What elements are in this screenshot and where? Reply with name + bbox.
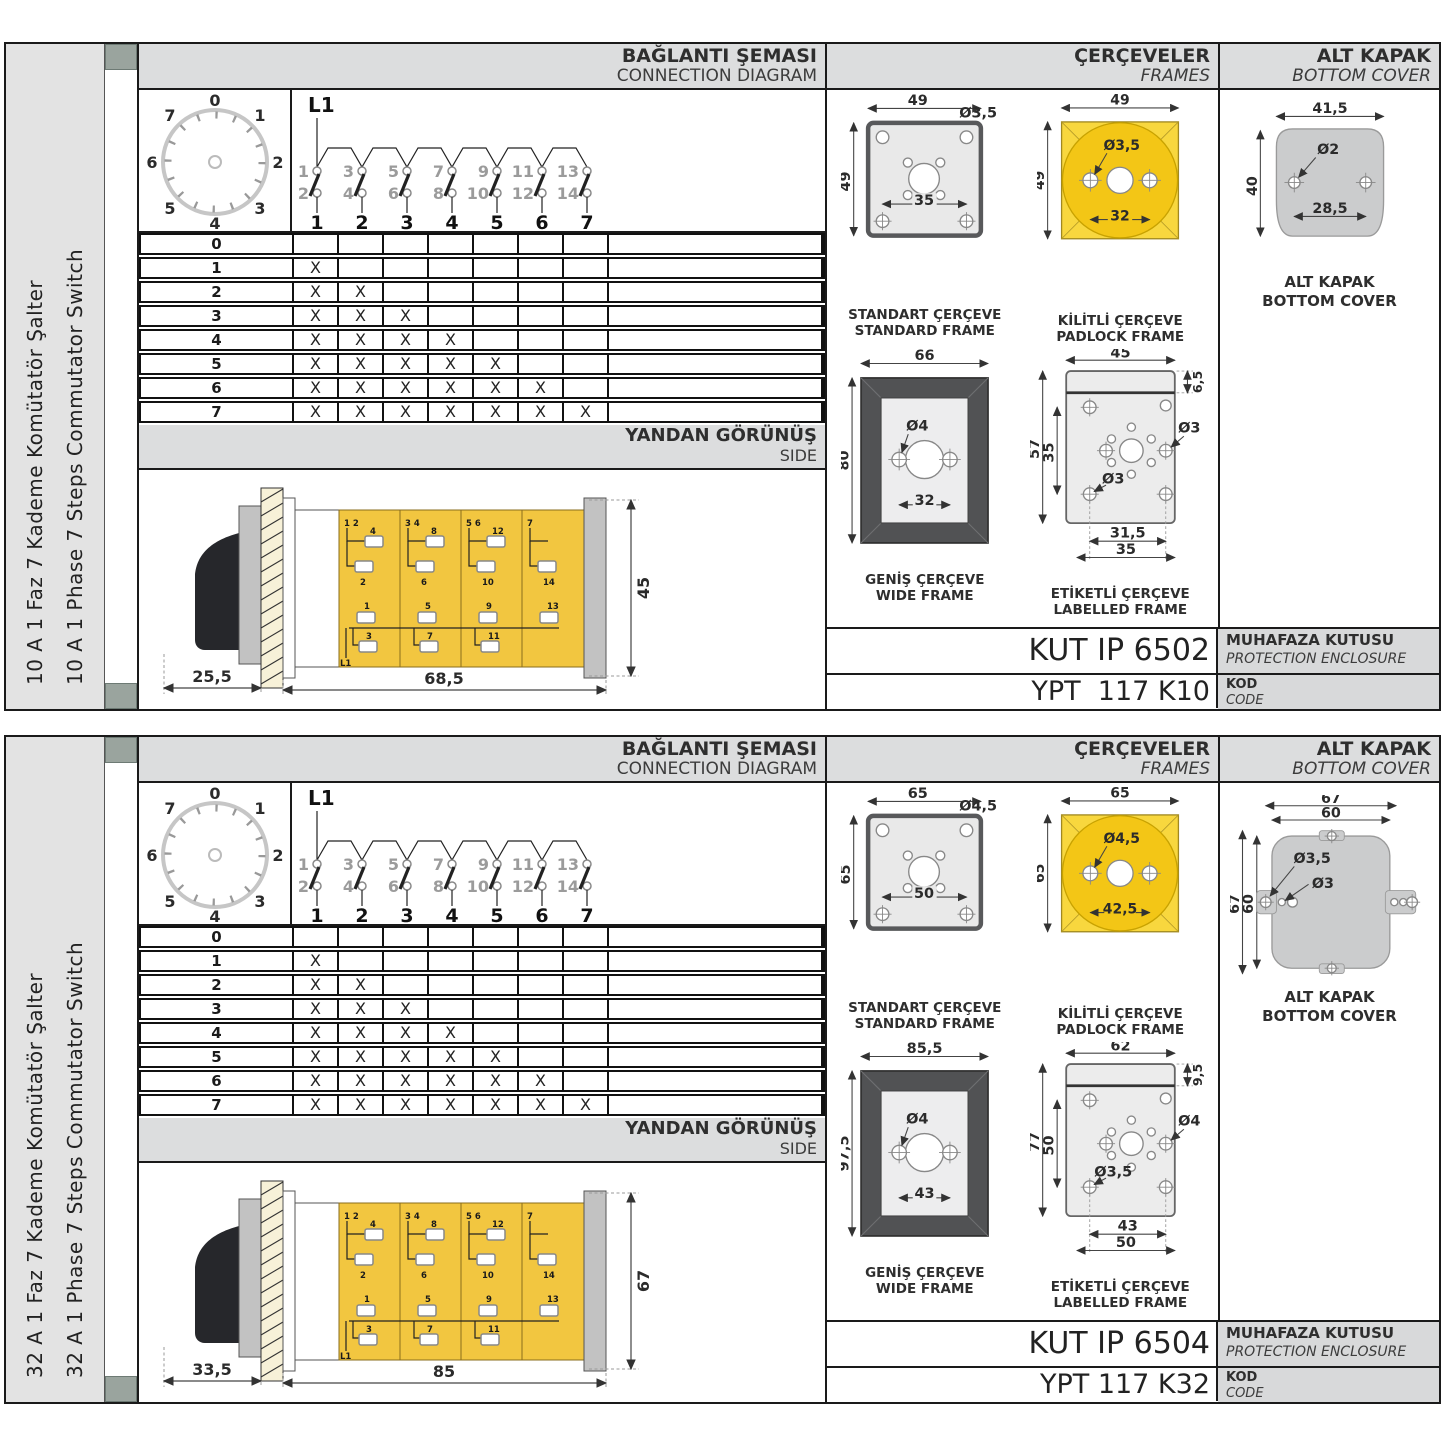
step-position: 0	[141, 235, 294, 253]
mark-cell: X	[294, 952, 339, 970]
svg-text:9: 9	[478, 855, 489, 874]
svg-text:13: 13	[547, 602, 559, 612]
mark-cell	[429, 1000, 474, 1018]
svg-text:2: 2	[298, 184, 309, 203]
svg-text:7: 7	[580, 905, 593, 924]
dim-width: 65	[908, 787, 928, 802]
header-band: BAĞLANTI ŞEMASI CONNECTION DIAGRAM ÇERÇE…	[139, 44, 1439, 90]
svg-text:4: 4	[343, 877, 354, 896]
step-marks: XXXX	[294, 1024, 609, 1042]
step-position: 6	[141, 1072, 294, 1090]
dial-label: 7	[164, 799, 175, 818]
caption-tr: GENİŞ ÇERÇEVE	[865, 572, 984, 588]
dim-body-height: 67	[634, 1270, 653, 1292]
mark-cell	[564, 1024, 609, 1042]
caption-tr: ETİKETLİ ÇERÇEVE	[1051, 586, 1190, 602]
mark-cell: X	[384, 379, 429, 397]
mark-cell	[564, 331, 609, 349]
mark-cell: X	[384, 1072, 429, 1090]
svg-text:13: 13	[547, 1295, 559, 1305]
table-row: 3XXX	[139, 305, 825, 327]
connection-diagram-column: 0 1 2 3 4 5 6 7	[139, 90, 827, 709]
svg-text:1: 1	[298, 855, 309, 874]
svg-text:2: 2	[355, 212, 368, 231]
bottom-cover-column: 67 60 67 60	[1220, 783, 1439, 1402]
product-code: YPT 117 K10	[827, 675, 1218, 708]
front-plate	[283, 1191, 295, 1371]
caption-tr: GENİŞ ÇERÇEVE	[865, 1265, 984, 1281]
mark-cell	[384, 976, 429, 994]
svg-text:11: 11	[512, 162, 534, 181]
dim-width: 65	[1111, 787, 1130, 801]
sidebar-title-en: 10 A 1 Phase 7 Steps Commutator Switch	[63, 68, 87, 685]
mark-cell: X	[384, 307, 429, 325]
mark-cell: X	[474, 403, 519, 421]
mark-cell: X	[384, 1096, 429, 1114]
svg-text:5: 5	[388, 855, 399, 874]
svg-text:5 6: 5 6	[466, 519, 481, 529]
caption-en: STANDARD FRAME	[848, 1016, 1001, 1032]
svg-text:9: 9	[478, 162, 489, 181]
header-bottom-cover: ALT KAPAK BOTTOM COVER	[1220, 737, 1439, 781]
mark-cell	[519, 928, 564, 946]
table-row: 2XX	[139, 281, 825, 303]
mark-cell	[429, 283, 474, 301]
code-label: KOD CODE	[1218, 1368, 1439, 1402]
mark-cell: X	[294, 1048, 339, 1066]
mark-cell	[384, 928, 429, 946]
dim-pitch2: 50	[1116, 1235, 1136, 1251]
mark-cell	[294, 928, 339, 946]
svg-text:8: 8	[433, 877, 444, 896]
mark-cell	[474, 283, 519, 301]
mounting-plate	[239, 1199, 261, 1357]
mark-cell	[429, 259, 474, 277]
spine-mark-top	[105, 44, 137, 70]
mark-cell	[339, 235, 384, 253]
dial-label: 3	[254, 892, 265, 911]
svg-text:10: 10	[482, 578, 494, 588]
contact-numbers: 12 34 56 78 910 1112 1314	[298, 855, 579, 896]
dim-pitch1: 31,5	[1110, 526, 1146, 542]
caption-tr: ETİKETLİ ÇERÇEVE	[1051, 1279, 1190, 1295]
caption-tr: KİLİTLİ ÇERÇEVE	[1056, 313, 1184, 329]
dial-label: 1	[254, 106, 265, 125]
svg-text:4: 4	[445, 212, 458, 231]
svg-text:3 4: 3 4	[405, 1212, 420, 1222]
header-en: CONNECTION DIAGRAM	[139, 66, 817, 86]
mark-cell	[564, 259, 609, 277]
step-position: 4	[141, 1024, 294, 1042]
mark-cell: X	[474, 1072, 519, 1090]
empty-cell	[609, 1072, 823, 1090]
step-table: 0 1X 2XX 3XXX 4XXXX 5XXXXX 6XXXXXX 7XXXX…	[139, 926, 825, 1118]
dim-body-depth: 68,5	[424, 669, 463, 688]
header-tr: ALT KAPAK	[1220, 46, 1431, 66]
mark-cell: X	[339, 1096, 384, 1114]
table-row: 2XX	[139, 974, 825, 996]
dim-pitch: 35	[914, 193, 934, 209]
side-view-title-en: SIDE	[139, 1139, 817, 1159]
bottom-cover-figure: 67 60 67 60	[1230, 795, 1430, 987]
side-view-band: YANDAN GÖRÜNÜŞ SIDE	[139, 425, 825, 470]
switch-handle	[195, 1225, 243, 1343]
header-tr: ÇERÇEVELER	[827, 46, 1210, 66]
svg-text:7: 7	[433, 855, 444, 874]
table-row: 4XXXX	[139, 329, 825, 351]
circuit-schematic: L1	[292, 783, 825, 924]
dim-hole: Ø3,5	[960, 105, 998, 121]
position-dial: 0 1 2 3 4 5 6 7	[139, 783, 292, 924]
side-view-drawing: 1 2 3 4 5 6 7 4 8 12 2 6	[139, 470, 825, 707]
step-marks: XXXXXX	[294, 1072, 609, 1090]
step-position: 7	[141, 1096, 294, 1114]
dim-height: 40	[1244, 176, 1260, 196]
svg-text:3: 3	[343, 855, 354, 874]
svg-text:10: 10	[467, 877, 489, 896]
dim-width: 49	[908, 94, 928, 109]
svg-text:2: 2	[360, 1271, 366, 1281]
frames-column: 65 Ø4,5 65	[827, 783, 1220, 1402]
svg-text:12: 12	[512, 877, 534, 896]
mark-cell: X	[294, 379, 339, 397]
mark-cell	[429, 952, 474, 970]
dim-hole: Ø4	[906, 1112, 928, 1128]
spine-mark-bottom	[105, 1376, 137, 1402]
mark-cell	[564, 1072, 609, 1090]
mark-cell: X	[429, 403, 474, 421]
header-frames: ÇERÇEVELER FRAMES	[827, 44, 1220, 88]
mark-cell	[384, 235, 429, 253]
mark-cell: X	[294, 403, 339, 421]
header-connection-diagram: BAĞLANTI ŞEMASI CONNECTION DIAGRAM	[139, 737, 827, 781]
dim-strip: 6,5	[1190, 371, 1205, 393]
panel-plate-hatched	[261, 1181, 283, 1381]
svg-text:6: 6	[421, 1271, 427, 1281]
mark-cell: X	[429, 355, 474, 373]
label-tr: KOD	[1226, 1370, 1439, 1386]
mark-cell: X	[429, 1072, 474, 1090]
svg-text:9: 9	[486, 602, 492, 612]
code-band: KUT IP 6504 MUHAFAZA KUTUSU PROTECTION E…	[825, 1320, 1439, 1402]
sidebar-10a: 10 A 1 Faz 7 Kademe Komütatör Şalter 10 …	[6, 44, 105, 709]
svg-text:1 2: 1 2	[344, 519, 359, 529]
mark-cell	[339, 259, 384, 277]
dim-width: 85,5	[906, 1042, 942, 1057]
bottom-cover-column: 41,5 40 Ø2 28,5 ALT KAPAK BOTTOM COVER	[1220, 90, 1439, 709]
dim-hole: Ø2	[1317, 142, 1339, 158]
caption-tr: STANDART ÇERÇEVE	[848, 1000, 1001, 1016]
dim-width: 49	[1111, 94, 1130, 108]
mark-cell: X	[339, 355, 384, 373]
svg-text:5: 5	[425, 602, 431, 612]
binder-spine	[105, 44, 137, 709]
mark-cell: X	[384, 1048, 429, 1066]
svg-text:5: 5	[425, 1295, 431, 1305]
empty-cell	[609, 283, 823, 301]
svg-text:14: 14	[543, 578, 555, 588]
header-frames: ÇERÇEVELER FRAMES	[827, 737, 1220, 781]
switch-handle	[195, 532, 243, 650]
mark-cell	[384, 283, 429, 301]
header-bottom-cover: ALT KAPAK BOTTOM COVER	[1220, 44, 1439, 88]
mark-cell: X	[429, 1048, 474, 1066]
mark-cell	[294, 235, 339, 253]
mark-cell: X	[294, 1096, 339, 1114]
mark-cell: X	[339, 331, 384, 349]
empty-cell	[609, 1096, 823, 1114]
dim-hole-right: Ø3	[1178, 421, 1200, 437]
caption-tr: STANDART ÇERÇEVE	[848, 307, 1001, 323]
svg-text:13: 13	[557, 162, 579, 181]
mark-cell: X	[294, 1000, 339, 1018]
mark-cell: X	[519, 1096, 564, 1114]
dim-pitch: 50	[914, 886, 934, 902]
dim-pitch2: 35	[1116, 542, 1136, 558]
labelled-frame-figure: 62 9,5 77 50	[1023, 1038, 1219, 1311]
step-marks: XX	[294, 976, 609, 994]
standard-frame-figure: 49 Ø3,5 49	[827, 90, 1023, 345]
svg-text:6: 6	[535, 905, 548, 924]
mark-cell: X	[429, 1024, 474, 1042]
label-en: CODE	[1226, 693, 1439, 709]
dial-label: 4	[209, 907, 220, 924]
spine-mark-bottom	[105, 683, 137, 709]
mark-cell	[519, 1024, 564, 1042]
pole-numbers: 1 2 3 4 5 6 7	[310, 212, 593, 231]
svg-text:4: 4	[370, 1220, 376, 1230]
step-position: 7	[141, 403, 294, 421]
mark-cell: X	[519, 379, 564, 397]
sidebar-title-tr: 32 A 1 Faz 7 Kademe Komütatör Şalter	[23, 761, 47, 1378]
dial-label: 6	[146, 846, 157, 865]
mark-cell	[519, 952, 564, 970]
mark-cell	[339, 928, 384, 946]
dim-hole: Ø4	[906, 419, 928, 435]
header-tr: ALT KAPAK	[1220, 739, 1431, 759]
table-row: 5XXXXX	[139, 353, 825, 375]
mark-cell	[429, 235, 474, 253]
caption-en: LABELLED FRAME	[1051, 602, 1190, 618]
svg-text:14: 14	[557, 184, 579, 203]
panel-main: BAĞLANTI ŞEMASI CONNECTION DIAGRAM ÇERÇE…	[137, 44, 1439, 709]
connection-diagram-column: 0 1 2 3 4 5 6 7	[139, 783, 827, 1402]
svg-text:4: 4	[445, 905, 458, 924]
dim-width: 41,5	[1312, 102, 1347, 117]
mark-cell: X	[339, 1000, 384, 1018]
enclosure-label: MUHAFAZA KUTUSU PROTECTION ENCLOSURE	[1218, 1322, 1439, 1366]
svg-text:4: 4	[343, 184, 354, 203]
enclosure-code: KUT IP 6502	[827, 629, 1218, 673]
dial-label: 0	[209, 91, 220, 110]
panel-plate-hatched	[261, 488, 283, 688]
label-en: PROTECTION ENCLOSURE	[1226, 650, 1439, 669]
dim-height: 97,5	[841, 1136, 852, 1172]
mark-cell: X	[339, 976, 384, 994]
mark-cell	[519, 283, 564, 301]
mark-cell	[384, 259, 429, 277]
empty-cell	[609, 355, 823, 373]
mark-cell: X	[384, 403, 429, 421]
dim-hole: Ø4,5	[1104, 831, 1141, 847]
side-view-title-en: SIDE	[139, 446, 817, 466]
dim-width: 66	[914, 349, 934, 364]
wide-frame-figure: 66 80 Ø4	[827, 345, 1023, 618]
svg-text:12: 12	[492, 1220, 504, 1230]
svg-text:11: 11	[512, 855, 534, 874]
caption-en: BOTTOM COVER	[1262, 292, 1397, 311]
svg-text:10: 10	[467, 184, 489, 203]
svg-text:8: 8	[433, 184, 444, 203]
mark-cell: X	[474, 1096, 519, 1114]
position-dial: 0 1 2 3 4 5 6 7	[139, 90, 292, 231]
svg-text:6: 6	[388, 184, 399, 203]
padlock-frame-figure: 49 49 Ø3,5	[1023, 90, 1219, 345]
dim-height: 49	[1037, 171, 1048, 190]
dial-label: 0	[209, 784, 220, 803]
empty-cell	[609, 331, 823, 349]
label-en: CODE	[1226, 1386, 1439, 1402]
mark-cell	[564, 928, 609, 946]
step-marks	[294, 235, 609, 253]
mark-cell	[474, 331, 519, 349]
header-en: FRAMES	[827, 66, 1210, 86]
dim-height: 49	[841, 171, 854, 191]
bottom-cover-figure: 41,5 40 Ø2 28,5	[1230, 102, 1430, 272]
step-marks: XXX	[294, 1000, 609, 1018]
step-position: 6	[141, 379, 294, 397]
empty-cell	[609, 976, 823, 994]
table-row: 5XXXXX	[139, 1046, 825, 1068]
dial-label: 4	[209, 214, 220, 231]
phase-label: L1	[308, 93, 335, 117]
step-position: 5	[141, 1048, 294, 1066]
rear-plate	[584, 1191, 606, 1371]
pole-numbers: 1 2 3 4 5 6 7	[310, 905, 593, 924]
svg-text:L1: L1	[340, 1352, 351, 1362]
dim-inner-height: 50	[1041, 1135, 1057, 1155]
table-row: 1X	[139, 950, 825, 972]
switch-panel-32a: 32 A 1 Faz 7 Kademe Komütatör Şalter 32 …	[4, 735, 1441, 1404]
step-marks: X	[294, 259, 609, 277]
mark-cell	[519, 259, 564, 277]
svg-text:1 2: 1 2	[344, 1212, 359, 1222]
mounting-plate	[239, 506, 261, 664]
header-en: CONNECTION DIAGRAM	[139, 759, 817, 779]
labelled-frame-figure: 45 6,5 57 35	[1023, 345, 1219, 618]
header-en: FRAMES	[827, 759, 1210, 779]
dial-label: 6	[146, 153, 157, 172]
mark-cell	[564, 976, 609, 994]
mark-cell	[429, 976, 474, 994]
mark-cell: X	[294, 1072, 339, 1090]
rear-plate	[584, 498, 606, 678]
mark-cell	[384, 952, 429, 970]
svg-text:8: 8	[431, 527, 437, 537]
code-band: KUT IP 6502 MUHAFAZA KUTUSU PROTECTION E…	[825, 627, 1439, 709]
label-tr: MUHAFAZA KUTUSU	[1226, 1324, 1439, 1343]
dim-pitch: 28,5	[1312, 201, 1347, 217]
svg-text:14: 14	[557, 877, 579, 896]
dim-hole: Ø3,5	[1104, 138, 1141, 154]
svg-text:3: 3	[343, 162, 354, 181]
mark-cell	[564, 1048, 609, 1066]
empty-cell	[609, 1024, 823, 1042]
mark-cell: X	[294, 1024, 339, 1042]
enclosure-code: KUT IP 6504	[827, 1322, 1218, 1366]
empty-cell	[609, 379, 823, 397]
mark-cell	[564, 379, 609, 397]
caption-tr: ALT KAPAK	[1262, 988, 1397, 1007]
side-view-title-tr: YANDAN GÖRÜNÜŞ	[139, 426, 817, 446]
svg-text:5 6: 5 6	[466, 1212, 481, 1222]
switch-panel-10a: 10 A 1 Faz 7 Kademe Komütatör Şalter 10 …	[4, 42, 1441, 711]
dim-width: 45	[1110, 349, 1130, 361]
svg-text:10: 10	[482, 1271, 494, 1281]
dim-body-depth: 85	[433, 1362, 455, 1381]
step-marks: XXXXXX	[294, 379, 609, 397]
svg-text:L1: L1	[340, 659, 351, 669]
padlock-frame-figure: 65 65 Ø4,5	[1023, 783, 1219, 1038]
header-tr: BAĞLANTI ŞEMASI	[139, 46, 817, 66]
svg-text:3: 3	[400, 212, 413, 231]
wide-frame-figure: 85,5 97,5 Ø4	[827, 1038, 1023, 1311]
mark-cell	[474, 1024, 519, 1042]
svg-text:7: 7	[527, 1212, 533, 1222]
mark-cell	[474, 307, 519, 325]
mark-cell: X	[294, 355, 339, 373]
step-position: 3	[141, 1000, 294, 1018]
svg-text:3 4: 3 4	[405, 519, 420, 529]
mark-cell: X	[474, 379, 519, 397]
sidebar-32a: 32 A 1 Faz 7 Kademe Komütatör Şalter 32 …	[6, 737, 105, 1402]
dial-label: 1	[254, 799, 265, 818]
mark-cell: X	[339, 283, 384, 301]
step-table: 0 1X 2XX 3XXX 4XXXX 5XXXXX 6XXXXXX 7XXXX…	[139, 233, 825, 425]
step-marks: XX	[294, 283, 609, 301]
step-position: 5	[141, 355, 294, 373]
code-label: KOD CODE	[1218, 675, 1439, 709]
mark-cell	[519, 331, 564, 349]
mark-cell: X	[294, 283, 339, 301]
dial-label: 2	[272, 153, 283, 172]
step-marks: XXXX	[294, 331, 609, 349]
caption-en: WIDE FRAME	[865, 1281, 984, 1297]
frames-column: 49 Ø3,5 49	[827, 90, 1220, 709]
dim-hole-left: Ø3,5	[1094, 1164, 1132, 1180]
dim-strip: 9,5	[1190, 1064, 1205, 1086]
table-row: 1X	[139, 257, 825, 279]
dim-pitch: 42,5	[1103, 901, 1137, 917]
mark-cell	[519, 307, 564, 325]
mark-cell: X	[339, 307, 384, 325]
dim-pitch1: 43	[1117, 1219, 1137, 1235]
svg-text:7: 7	[580, 212, 593, 231]
mark-cell	[519, 235, 564, 253]
header-tr: BAĞLANTI ŞEMASI	[139, 739, 817, 759]
mark-cell: X	[429, 1096, 474, 1114]
caption-en: PADLOCK FRAME	[1056, 1022, 1184, 1038]
label-en: PROTECTION ENCLOSURE	[1226, 1343, 1439, 1362]
circuit-schematic: L1	[292, 90, 825, 231]
mark-cell	[474, 976, 519, 994]
dim-width-inner: 60	[1320, 805, 1340, 821]
dim-hole-right: Ø4	[1178, 1114, 1200, 1130]
dim-height: 80	[841, 450, 852, 470]
phase-label: L1	[308, 786, 335, 810]
svg-text:7: 7	[527, 519, 533, 529]
mark-cell	[339, 952, 384, 970]
